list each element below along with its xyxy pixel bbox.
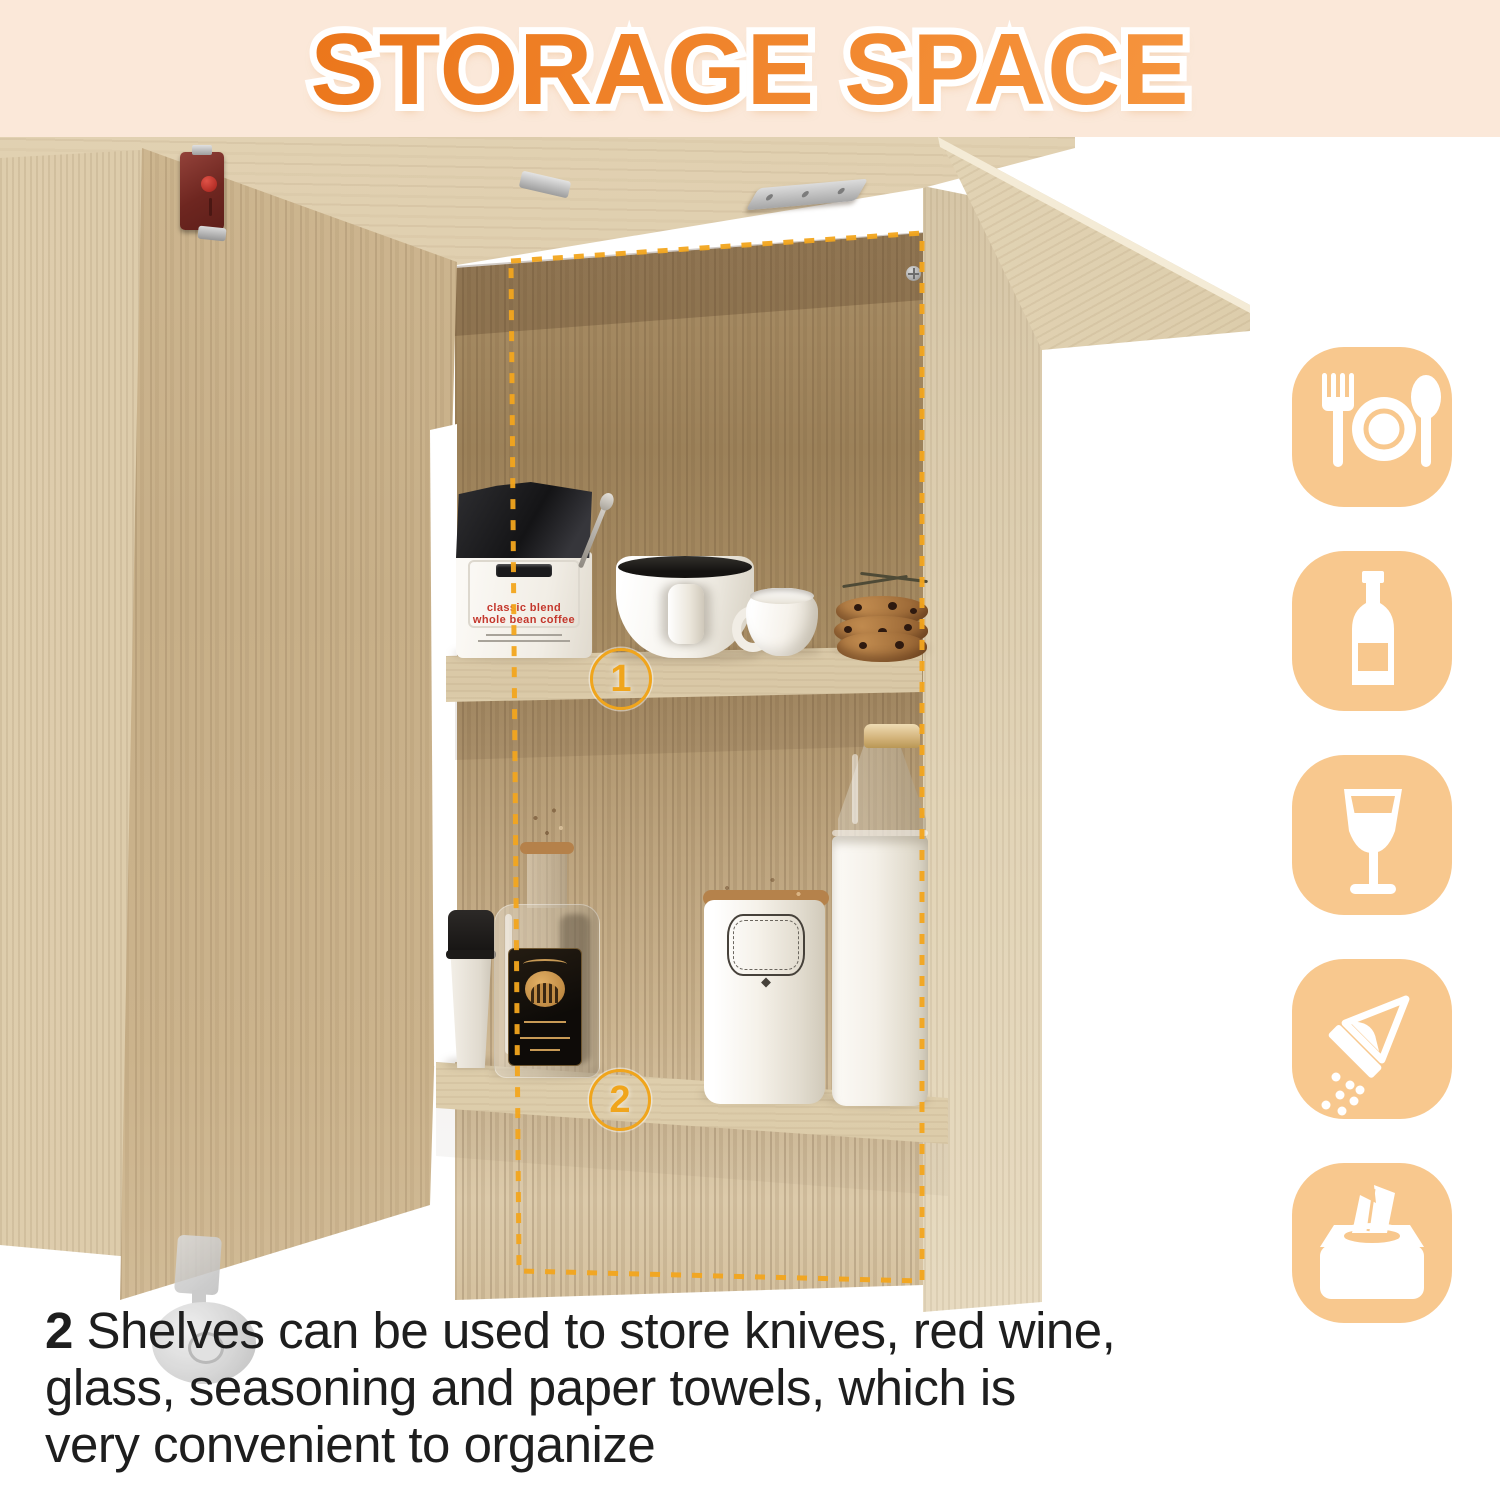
caption-line-3: very convenient to organize	[45, 1416, 1305, 1473]
wine-bottle-icon	[1292, 551, 1452, 711]
storage-area-outline	[0, 0, 1500, 1500]
tableware-icon	[1292, 347, 1452, 507]
caption-line-1: 2 Shelves can be used to store knives, r…	[45, 1302, 1305, 1359]
caption-line-2: glass, seasoning and paper towels, which…	[45, 1359, 1305, 1416]
shelf2-number-badge: 2	[589, 1069, 651, 1131]
tissue-box-icon	[1292, 1163, 1452, 1323]
caption-text: 2 Shelves can be used to store knives, r…	[45, 1302, 1305, 1473]
product-infographic: STORAGE SPACE STORAGE SPACE	[0, 0, 1500, 1500]
shelf1-number-badge: 1	[590, 648, 652, 710]
wine-glass-icon	[1292, 755, 1452, 915]
seasoning-shaker-icon	[1292, 959, 1452, 1119]
